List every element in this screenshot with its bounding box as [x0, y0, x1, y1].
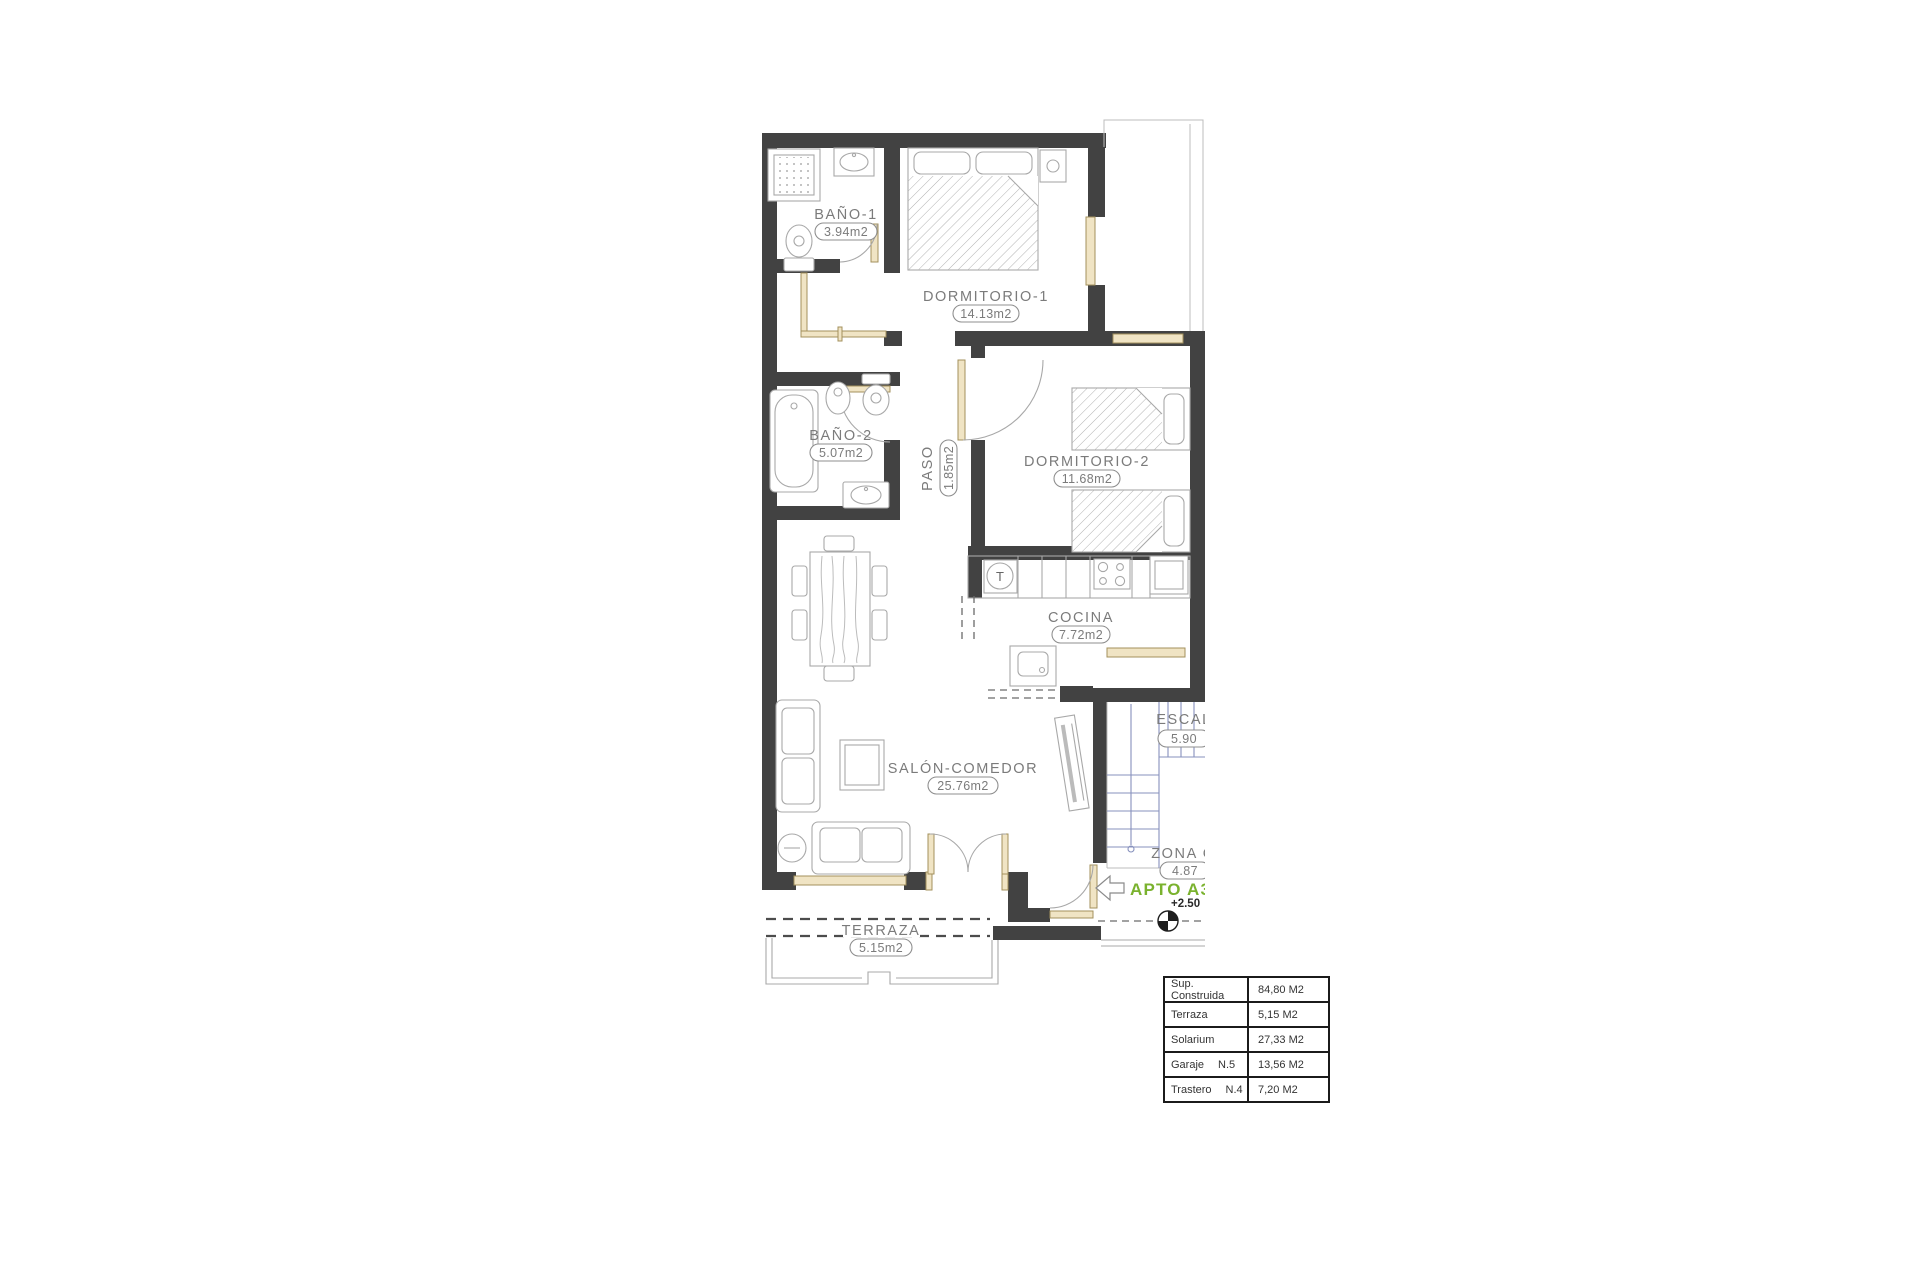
svg-text:4.87: 4.87 — [1172, 864, 1198, 878]
label-zona-comun: ZONA C — [1151, 846, 1205, 862]
terrace-door-right — [1002, 834, 1008, 874]
label-dormitorio1: DORMITORIO-1 — [923, 289, 1049, 305]
window-dormitorio1 — [1086, 217, 1095, 285]
pillow — [1164, 394, 1184, 444]
row-label: Terraza — [1163, 1001, 1249, 1028]
pillow — [1164, 496, 1184, 546]
label-bano1: BAÑO-1 — [814, 206, 878, 223]
table-row: Terraza 5,15 M2 — [1163, 1001, 1330, 1028]
row-value: 5,15 M2 — [1247, 1001, 1330, 1028]
label-cocina: COCINA — [1048, 610, 1114, 626]
chair — [792, 610, 807, 640]
chair — [824, 536, 854, 551]
row-value: 27,33 M2 — [1247, 1026, 1330, 1053]
svg-text:T: T — [996, 569, 1004, 584]
entry-threshold — [1050, 911, 1093, 918]
svg-text:3.94m2: 3.94m2 — [824, 225, 868, 239]
sofa-set — [776, 700, 910, 874]
hall-partition-h — [801, 331, 886, 337]
pillow — [976, 152, 1032, 174]
svg-text:25.76m2: 25.76m2 — [937, 779, 988, 793]
window-salon — [794, 876, 906, 885]
coffee-table — [840, 740, 884, 790]
window-dormitorio2 — [1113, 334, 1183, 343]
kitchen-bar — [1107, 648, 1185, 657]
entrance-annotations: APTO A3 +2.50 — [1096, 876, 1205, 931]
apartment-arrow-icon — [1096, 876, 1124, 900]
floor-plan: T — [0, 0, 1205, 1280]
entrance-door — [1090, 865, 1097, 908]
bed-double — [908, 148, 1066, 270]
tv-unit — [1055, 715, 1089, 811]
row-label: Sup. Construida — [1163, 976, 1249, 1003]
kitchen-sink-icon — [1010, 646, 1056, 686]
svg-text:PASO: PASO — [920, 445, 936, 491]
dining-table — [810, 552, 870, 666]
bidet-icon — [826, 382, 850, 414]
svg-text:5.15m2: 5.15m2 — [859, 941, 903, 955]
dining-set — [792, 536, 887, 681]
level-symbol-icon — [1158, 911, 1178, 931]
terrace-boundary — [766, 919, 1205, 984]
table-row: GarajeN.5 13,56 M2 — [1163, 1051, 1330, 1078]
sink2-icon — [843, 482, 889, 508]
level-mark: +2.50 — [1171, 898, 1200, 910]
row-label: TrasteroN.4 — [1163, 1076, 1249, 1103]
row-value: 13,56 M2 — [1247, 1051, 1330, 1078]
chair — [872, 566, 887, 596]
svg-text:11.68m2: 11.68m2 — [1062, 472, 1113, 486]
terrace-door-left — [928, 834, 934, 874]
svg-text:1.85m2: 1.85m2 — [942, 446, 956, 490]
surface-summary-table: Sup. Construida 84,80 M2 Terraza 5,15 M2… — [1163, 976, 1330, 1103]
label-salon: SALÓN-COMEDOR — [888, 760, 1039, 777]
row-value: 7,20 M2 — [1247, 1076, 1330, 1103]
row-label: GarajeN.5 — [1163, 1051, 1249, 1078]
table-row: TrasteroN.4 7,20 M2 — [1163, 1076, 1330, 1103]
hall-partition-v — [801, 273, 807, 335]
adjacent-zone-outline — [1104, 120, 1203, 331]
table-row: Solarium 27,33 M2 — [1163, 1026, 1330, 1053]
pillow — [914, 152, 970, 174]
svg-text:5.90: 5.90 — [1171, 732, 1197, 746]
label-terraza: TERRAZA — [842, 923, 921, 939]
svg-text:7.72m2: 7.72m2 — [1059, 628, 1103, 642]
fridge-icon — [1150, 556, 1188, 594]
chair — [792, 566, 807, 596]
label-dormitorio2: DORMITORIO-2 — [1024, 454, 1150, 470]
toilet-icon — [784, 225, 814, 271]
stove-icon — [1094, 559, 1130, 589]
svg-text:5.07m2: 5.07m2 — [819, 446, 863, 460]
label-paso: PASO 1.85m2 — [920, 440, 957, 496]
door-dormitorio2 — [958, 360, 965, 440]
svg-text:14.13m2: 14.13m2 — [960, 307, 1011, 321]
chair — [824, 666, 854, 681]
toilet2-icon — [862, 374, 890, 415]
row-value: 84,80 M2 — [1247, 976, 1330, 1003]
label-escalera: ESCAL — [1156, 712, 1205, 728]
chair — [872, 610, 887, 640]
nightstand — [1040, 150, 1066, 182]
row-label: Solarium — [1163, 1026, 1249, 1053]
label-bano2: BAÑO-2 — [809, 427, 873, 444]
apartment-label: APTO A3 — [1130, 880, 1205, 899]
washing-machine-icon: T — [984, 560, 1017, 593]
table-row: Sup. Construida 84,80 M2 — [1163, 976, 1330, 1003]
